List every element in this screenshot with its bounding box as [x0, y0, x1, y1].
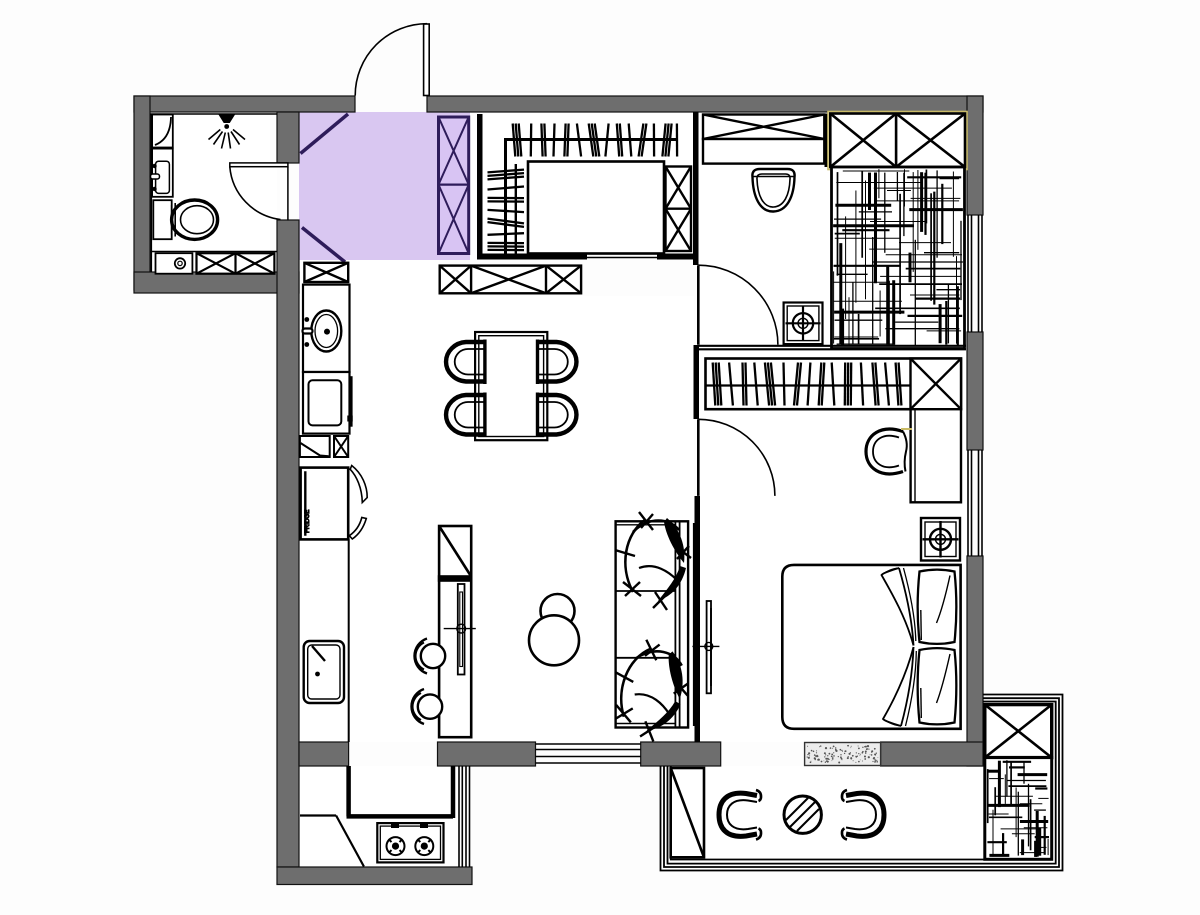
svg-text:FRIDGE: FRIDGE — [304, 510, 311, 533]
